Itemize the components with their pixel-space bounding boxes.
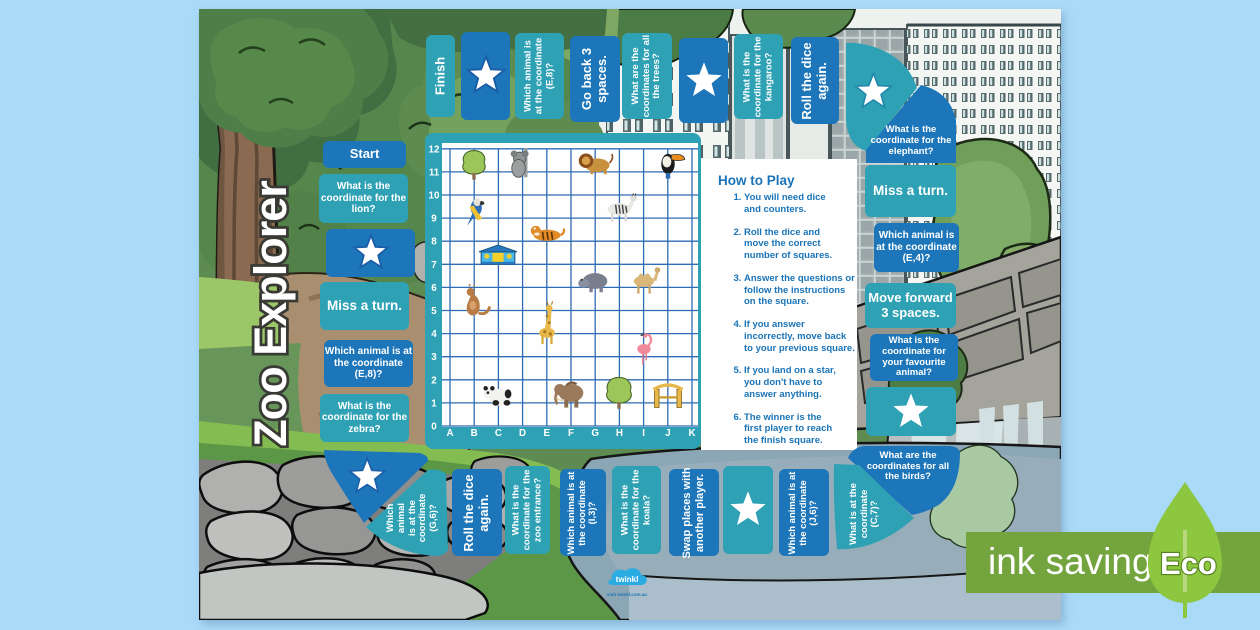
- svg-text:twinkl: twinkl: [616, 575, 639, 584]
- svg-text:A: A: [446, 428, 453, 439]
- svg-text:C: C: [495, 428, 502, 439]
- svg-text:1: 1: [431, 398, 437, 409]
- svg-text:10: 10: [429, 191, 440, 202]
- svg-text:B: B: [471, 428, 478, 439]
- svg-text:6: 6: [431, 283, 437, 294]
- svg-text:8: 8: [431, 237, 437, 248]
- svg-text:2: 2: [431, 375, 437, 386]
- svg-text:11: 11: [429, 167, 440, 178]
- svg-text:G: G: [591, 428, 599, 439]
- svg-text:Zoo Explorer: Zoo Explorer: [245, 181, 296, 447]
- svg-text:12: 12: [429, 144, 440, 155]
- svg-text:3: 3: [431, 352, 437, 363]
- svg-text:4: 4: [431, 329, 437, 340]
- svg-text:H: H: [616, 428, 623, 439]
- svg-text:I: I: [642, 428, 645, 439]
- svg-text:7: 7: [431, 260, 437, 271]
- svg-text:0: 0: [431, 422, 437, 433]
- svg-text:E: E: [544, 428, 551, 439]
- svg-text:D: D: [519, 428, 526, 439]
- svg-text:J: J: [665, 428, 670, 439]
- svg-text:Eco: Eco: [1160, 546, 1217, 581]
- svg-text:K: K: [688, 428, 695, 439]
- svg-text:F: F: [568, 428, 574, 439]
- svg-text:9: 9: [431, 214, 437, 225]
- svg-text:5: 5: [431, 306, 437, 317]
- svg-text:visit twinkl.com.au: visit twinkl.com.au: [607, 592, 647, 597]
